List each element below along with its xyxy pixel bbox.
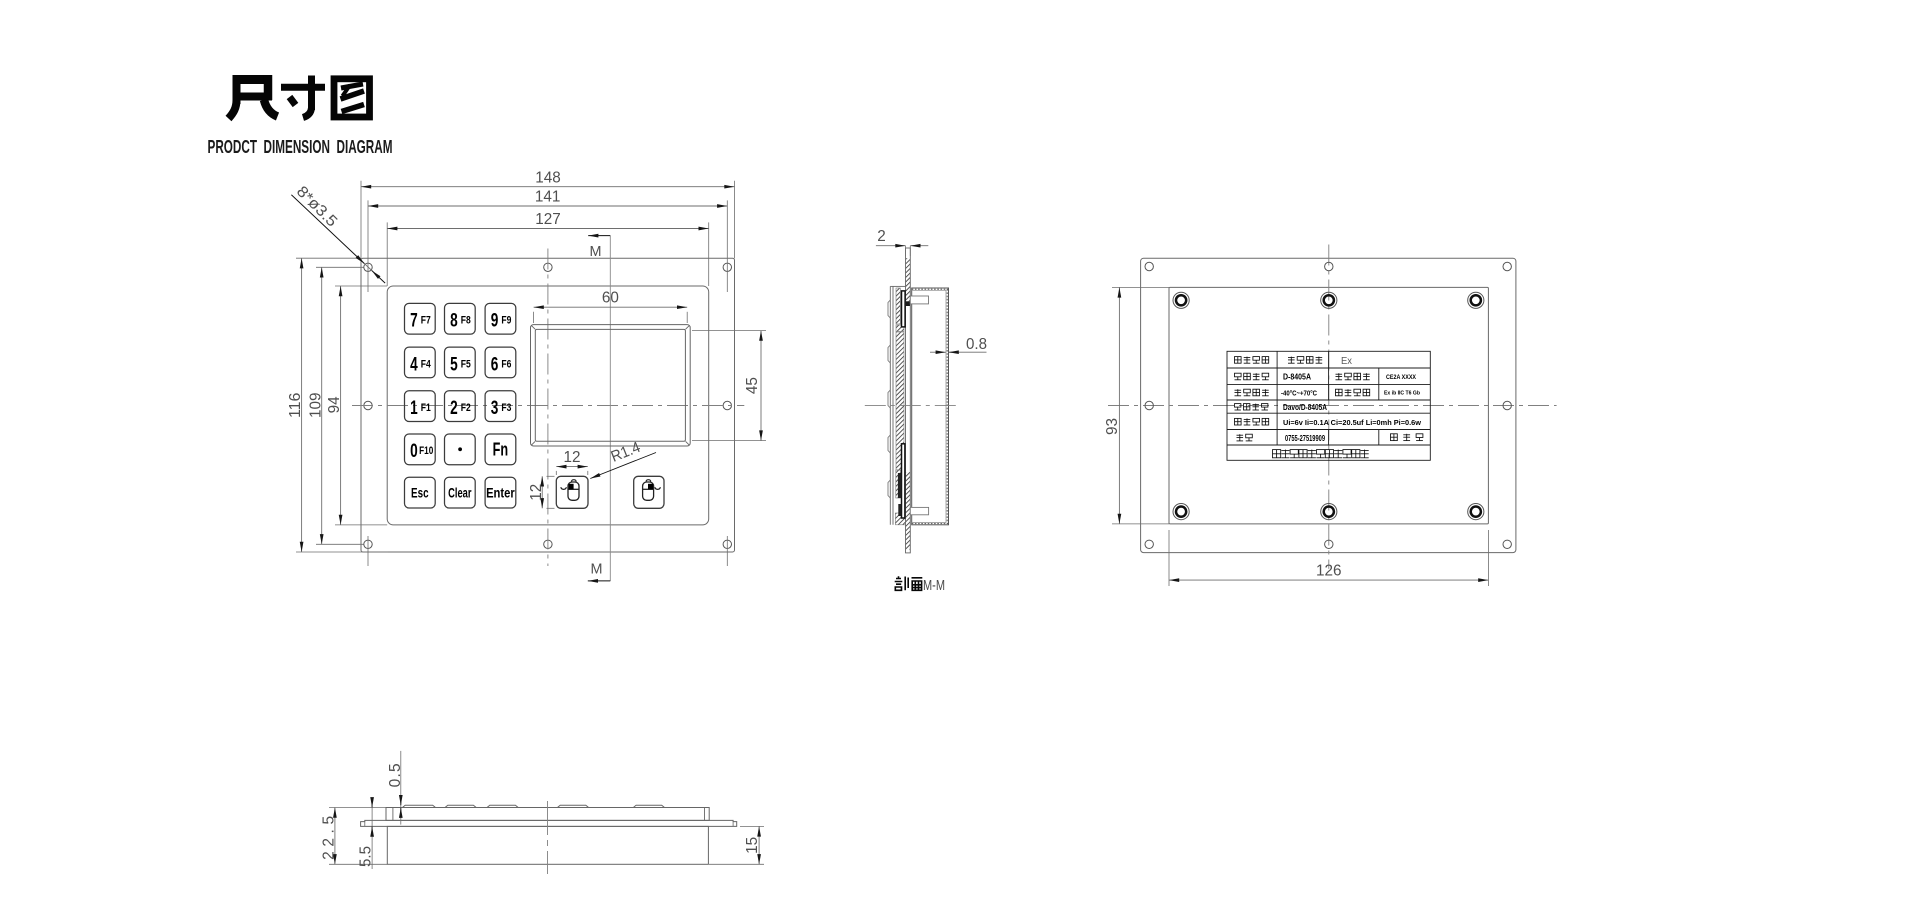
svg-text:5: 5: [450, 354, 458, 375]
svg-text:141: 141: [535, 189, 561, 206]
svg-text:0: 0: [410, 441, 418, 462]
svg-text:F3: F3: [501, 402, 511, 414]
svg-text:12: 12: [528, 484, 545, 501]
svg-text:45: 45: [744, 377, 761, 394]
svg-text:127: 127: [535, 211, 561, 228]
svg-text:0.5: 0.5: [387, 763, 404, 787]
svg-text:CE2A XXXX: CE2A XXXX: [1386, 374, 1417, 381]
svg-text:-40°C~+70°C: -40°C~+70°C: [1281, 389, 1317, 398]
svg-text:4: 4: [410, 354, 418, 375]
svg-text:2: 2: [877, 228, 886, 245]
svg-text:7: 7: [410, 311, 418, 332]
svg-text:Ui=6v Ii=0.1A Ci=20.5uf Li=0mh: Ui=6v Ii=0.1A Ci=20.5uf Li=0mh Pi=0.6w: [1283, 418, 1421, 427]
svg-text:F5: F5: [461, 358, 471, 370]
svg-text:0755-27519909: 0755-27519909: [1285, 434, 1325, 443]
svg-text:F7: F7: [421, 315, 431, 327]
svg-text:D-8405A: D-8405A: [1283, 373, 1311, 382]
svg-text:2: 2: [450, 398, 458, 419]
svg-text:M: M: [590, 243, 602, 260]
svg-text:F9: F9: [501, 315, 511, 327]
svg-text:Clear: Clear: [448, 484, 472, 500]
svg-text:Enter: Enter: [486, 484, 515, 500]
svg-text:0.8: 0.8: [966, 336, 987, 353]
svg-text:93: 93: [1104, 418, 1121, 435]
svg-text:Ex ib IIC T6 Gb: Ex ib IIC T6 Gb: [1384, 391, 1420, 397]
svg-text:126: 126: [1316, 562, 1342, 579]
svg-text:6: 6: [491, 354, 499, 375]
svg-text:F8: F8: [461, 315, 471, 327]
svg-text:116: 116: [287, 393, 304, 419]
svg-text:Ex: Ex: [1341, 355, 1353, 367]
svg-text:F2: F2: [461, 402, 471, 414]
svg-text:148: 148: [535, 169, 561, 186]
svg-text:109: 109: [307, 393, 324, 419]
svg-text:F10: F10: [419, 445, 433, 457]
svg-text:Davo/D-8405A: Davo/D-8405A: [1283, 403, 1327, 412]
svg-text:1: 1: [410, 398, 418, 419]
svg-text:F1: F1: [421, 402, 431, 414]
svg-text:12: 12: [564, 449, 581, 466]
svg-text:PRODCT DIMENSION DIAGRAM: PRODCT DIMENSION DIAGRAM: [208, 137, 393, 157]
svg-text:60: 60: [602, 290, 619, 307]
svg-text:9: 9: [491, 311, 499, 332]
svg-text:15: 15: [744, 837, 761, 854]
svg-text:Esc: Esc: [411, 484, 429, 500]
svg-text:8: 8: [450, 311, 458, 332]
svg-text:F4: F4: [421, 358, 432, 370]
svg-text:94: 94: [326, 396, 343, 413]
svg-text:M: M: [591, 561, 603, 578]
svg-text:3: 3: [491, 398, 499, 419]
svg-text:Fn: Fn: [493, 440, 509, 460]
svg-text:F6: F6: [501, 358, 511, 370]
svg-text:5.5: 5.5: [358, 846, 375, 867]
svg-text:M-M: M-M: [923, 577, 945, 594]
